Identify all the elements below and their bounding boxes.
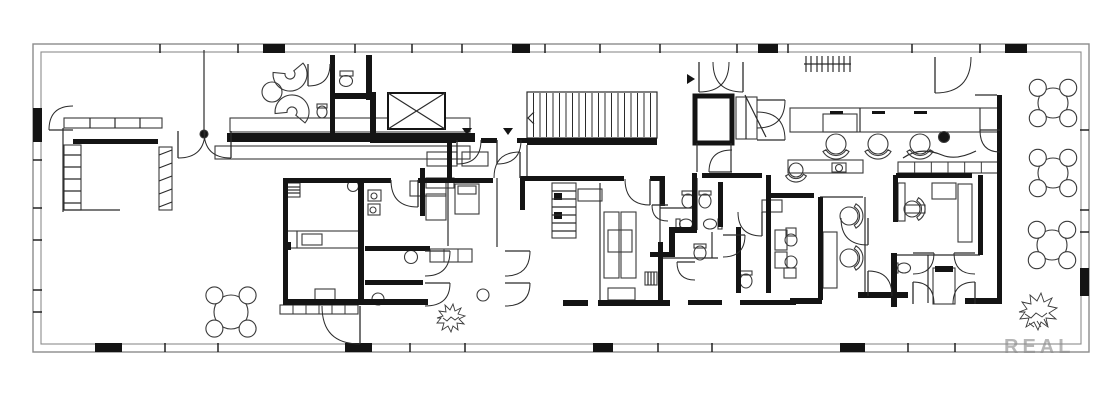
furniture xyxy=(784,268,796,278)
door-arc xyxy=(505,283,530,306)
furniture xyxy=(933,268,955,304)
task-chair xyxy=(840,207,858,225)
task-chair xyxy=(904,201,920,217)
stair-break-line xyxy=(745,95,766,137)
wall-pier xyxy=(1080,268,1089,296)
table-chair xyxy=(1029,149,1046,166)
shaft xyxy=(695,96,732,143)
wall xyxy=(520,176,525,210)
wall xyxy=(283,178,288,305)
wall-pier xyxy=(95,343,122,352)
column-dot xyxy=(939,132,950,143)
task-chair xyxy=(840,249,858,267)
wall xyxy=(332,93,370,99)
wall xyxy=(658,242,663,304)
wall xyxy=(702,173,762,178)
wall xyxy=(481,138,497,143)
table-chair xyxy=(1060,149,1077,166)
wall xyxy=(285,299,428,305)
chair-back xyxy=(854,246,863,270)
wall-pier xyxy=(263,44,285,53)
table-chair xyxy=(1028,221,1045,238)
wall xyxy=(896,173,972,178)
chair-back xyxy=(786,174,807,182)
sink-stool xyxy=(836,165,843,172)
floor-plan: REAL xyxy=(0,0,1110,400)
wall xyxy=(330,98,335,134)
door-arc xyxy=(723,235,745,257)
door-arc xyxy=(494,152,520,178)
wall xyxy=(978,175,983,255)
wall-line xyxy=(159,176,172,181)
door-arc xyxy=(625,179,650,205)
furniture xyxy=(621,212,636,278)
sink-stool xyxy=(262,82,282,102)
table-chair xyxy=(1060,79,1077,96)
door-arc xyxy=(391,180,418,207)
table-chair xyxy=(1060,180,1077,197)
wall xyxy=(790,298,822,304)
door-arc xyxy=(738,212,762,236)
wall-pier xyxy=(33,108,42,142)
wall-line xyxy=(159,189,172,194)
furniture xyxy=(823,232,837,288)
door-arc xyxy=(505,251,530,276)
furniture xyxy=(823,114,857,132)
wall-line xyxy=(159,163,172,168)
wall xyxy=(858,292,908,298)
fan-chair xyxy=(275,95,309,123)
task-chair xyxy=(826,134,846,154)
table-chair xyxy=(239,320,256,337)
furniture xyxy=(788,160,863,173)
sink-stool xyxy=(477,289,489,301)
wall xyxy=(358,178,364,305)
wall xyxy=(365,246,430,251)
floor-plan-drawing xyxy=(0,0,1110,400)
furniture xyxy=(762,200,782,212)
wall xyxy=(740,300,796,305)
wall-pier xyxy=(1005,44,1027,53)
chair-back xyxy=(854,204,863,228)
fan-chair xyxy=(273,63,307,91)
wall xyxy=(965,298,1002,304)
wall-line xyxy=(159,202,172,207)
furniture xyxy=(426,194,446,220)
table-chair xyxy=(1029,110,1046,127)
wall xyxy=(418,178,493,183)
door-arc xyxy=(935,57,971,93)
wall xyxy=(736,227,741,293)
wall xyxy=(283,242,291,250)
handle xyxy=(914,111,927,114)
furniture xyxy=(455,184,479,214)
furniture xyxy=(608,288,635,300)
table-chair xyxy=(1059,221,1076,238)
wall-pier xyxy=(593,343,613,352)
table-chair xyxy=(1060,110,1077,127)
sink-stool xyxy=(370,207,376,213)
furniture xyxy=(64,118,162,128)
door-arc xyxy=(954,253,975,274)
wall xyxy=(448,138,456,143)
toilet-bowl xyxy=(740,274,752,288)
wall xyxy=(818,197,823,300)
wall-pier xyxy=(758,44,778,53)
wall xyxy=(688,300,722,305)
furniture xyxy=(608,230,632,252)
sink-stool xyxy=(405,251,418,264)
wall xyxy=(660,176,665,206)
wall xyxy=(893,175,898,222)
wall xyxy=(517,138,527,143)
toilet-bowl xyxy=(704,219,717,229)
wall xyxy=(520,176,624,181)
table-chair xyxy=(1059,252,1076,269)
table-chair xyxy=(1028,252,1045,269)
toilet-bowl xyxy=(699,194,711,208)
wall xyxy=(718,182,723,227)
wall xyxy=(365,280,423,285)
door-arc xyxy=(425,251,450,276)
handle xyxy=(830,111,843,114)
wall xyxy=(891,253,897,307)
plant xyxy=(1019,293,1057,330)
wall xyxy=(563,300,588,306)
toilet-bowl xyxy=(340,76,353,87)
door-arc xyxy=(308,64,330,86)
wall xyxy=(370,133,448,143)
toilet-bowl xyxy=(898,263,911,273)
task-chair xyxy=(868,134,888,154)
table-chair xyxy=(206,320,223,337)
table-chair xyxy=(239,287,256,304)
chair-back xyxy=(917,198,925,221)
door-arc xyxy=(322,306,360,344)
furniture xyxy=(302,234,322,245)
wall-pier xyxy=(840,343,865,352)
table-chair xyxy=(1029,79,1046,96)
furniture xyxy=(578,189,602,201)
door-arc xyxy=(841,218,868,245)
wall xyxy=(420,168,425,216)
table-chair xyxy=(206,287,223,304)
wall xyxy=(935,266,953,272)
wall xyxy=(73,139,158,144)
furniture xyxy=(898,183,905,221)
furniture xyxy=(958,184,972,242)
door-direction-marker xyxy=(687,74,695,84)
door-arc xyxy=(913,282,934,304)
door-arc xyxy=(913,253,934,274)
wall xyxy=(766,175,771,293)
wall xyxy=(997,95,1002,302)
door-arc xyxy=(709,150,732,172)
door-direction-marker xyxy=(503,128,513,135)
wall xyxy=(447,143,452,178)
handle xyxy=(872,111,885,114)
door-arc xyxy=(677,262,695,280)
wall xyxy=(692,173,697,233)
furniture xyxy=(932,183,956,199)
door-arc xyxy=(425,283,450,306)
task-chair xyxy=(789,163,803,177)
furniture xyxy=(458,186,476,194)
wall-pier xyxy=(512,44,530,53)
wall-line xyxy=(159,150,172,155)
wall xyxy=(527,138,657,145)
wall xyxy=(770,193,814,198)
plant xyxy=(437,304,465,332)
wall xyxy=(283,178,391,183)
table-chair xyxy=(1029,180,1046,197)
wall xyxy=(650,252,670,257)
sink-stool xyxy=(371,193,377,199)
furniture xyxy=(604,212,619,278)
